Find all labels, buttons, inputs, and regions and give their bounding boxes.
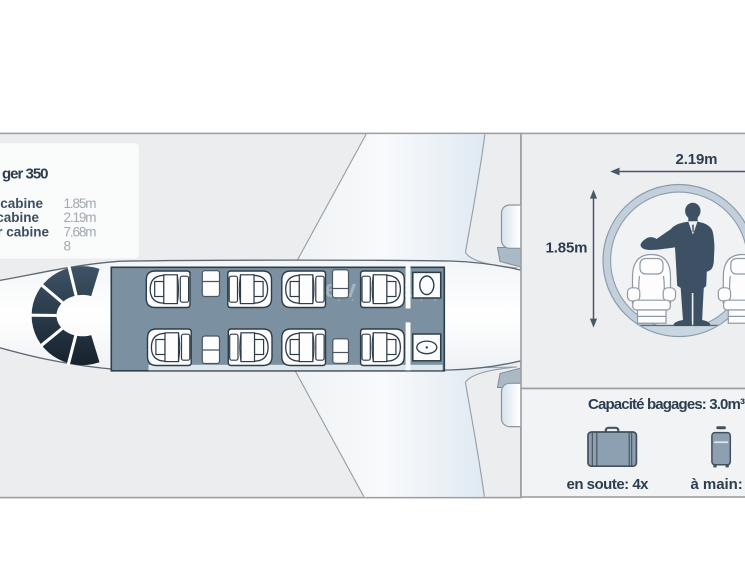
svg-text:7.68m: 7.68m [64, 224, 97, 239]
svg-text:r cabine: r cabine [0, 196, 43, 211]
svg-text:• • • • • • • • • • • • • • •: • • • • • • • • • • • • • • • [324, 299, 524, 305]
svg-text:en soute: 4x: en soute: 4x [567, 476, 650, 493]
svg-text:1.85m: 1.85m [64, 196, 97, 211]
svg-text:1.85m: 1.85m [546, 240, 588, 257]
svg-text:ger 350: ger 350 [2, 166, 49, 183]
svg-text:à main: 4x: à main: 4x [691, 476, 745, 493]
svg-text:2.19m: 2.19m [676, 151, 718, 168]
svg-text:2.19m: 2.19m [64, 210, 97, 225]
svg-text:ur cabine: ur cabine [0, 224, 49, 239]
svg-text:8: 8 [64, 239, 72, 254]
svg-text:Capacité bagages: 3.0m³: Capacité bagages: 3.0m³ [588, 396, 745, 413]
svg-text:cabine: cabine [0, 210, 39, 225]
